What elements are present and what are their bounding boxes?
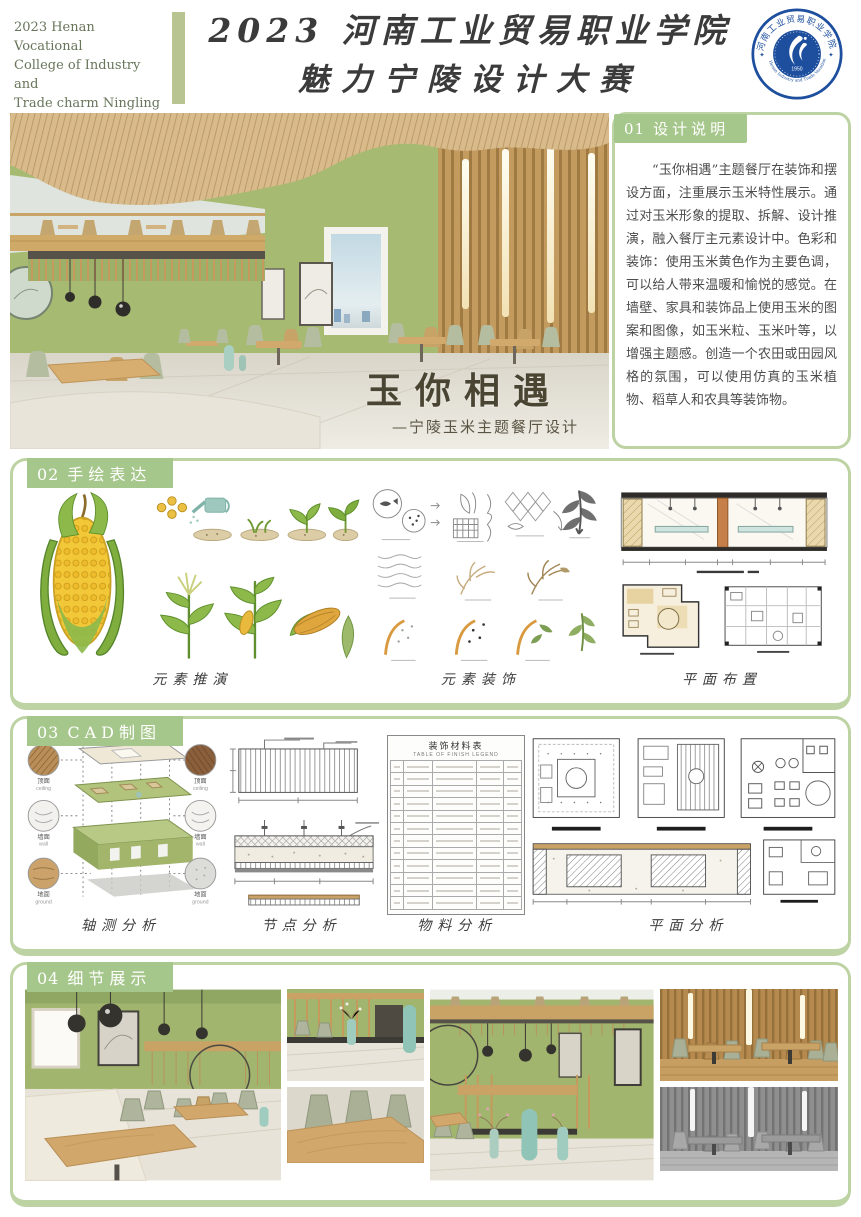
caption-line: Trade charm Ningling [14, 94, 166, 113]
poster-title-line1: 2023 河南工业贸易职业学院 [195, 4, 745, 52]
logo-star-left: ✦ [759, 52, 764, 59]
label-element-decoration: 元素装饰 [358, 669, 604, 689]
material-label-en: ground [35, 899, 52, 905]
detail-photo-6-grayscale [660, 1087, 838, 1171]
material-label-en: ground [192, 899, 209, 905]
material-label-en: ceiling [193, 786, 208, 792]
material-table-title: 装饰材料表 [390, 739, 522, 752]
detail-photo-1 [25, 989, 281, 1181]
plan-sketches-illustration [609, 483, 840, 667]
label-material-analysis: 物料分析 [384, 915, 531, 935]
caption-line: 2023 Henan Vocational [14, 18, 166, 56]
detail-photo-2 [287, 989, 424, 1081]
hero-overlay: 玉你相遇 —宁陵玉米主题餐厅设计 [366, 362, 579, 437]
section-sketch-tab: 02手绘表达 [27, 458, 173, 488]
corn-illustration [27, 483, 143, 667]
material-label: 顶面 [37, 777, 50, 785]
poster: 2023 Henan Vocational College of Industr… [0, 0, 861, 1217]
section-cad-tab: 03CAD制图 [27, 716, 183, 746]
section-number: 01 [624, 120, 645, 138]
section-title: 细节展示 [67, 969, 151, 988]
node-details-illustration [225, 735, 383, 913]
section-title: 手绘表达 [67, 465, 151, 484]
material-label-en: ceiling [36, 786, 51, 792]
material-table-subtitle: TABLE OF FINISH LEGEND [390, 752, 522, 758]
label-element-derivation: 元素推演 [27, 669, 358, 689]
design-note-text: “玉你相遇”主题餐厅在装饰和摆设方面，注重展示玉米特性展示。通过对玉米形象的提取… [615, 156, 848, 412]
material-label: 顶面 [194, 777, 207, 785]
section-sketch: 02手绘表达 [10, 458, 851, 710]
material-label: 地面 [37, 890, 50, 899]
label-plan-analysis: 平面分析 [535, 915, 842, 935]
label-floor-layout: 平面布置 [604, 669, 840, 689]
section-cad: 03CAD制图 [10, 716, 851, 956]
section-title: CAD制图 [67, 723, 161, 742]
section-number: 04 [37, 969, 59, 988]
section-title: 设计说明 [653, 120, 729, 138]
design-note-panel: 01设计说明 “玉你相遇”主题餐厅在装饰和摆设方面，注重展示玉米特性展示。通过对… [612, 112, 851, 449]
college-logo: 河南工业贸易职业学院 Henan Industry and Trade Voca… [751, 8, 843, 100]
axonometric-illustration: 顶面 ceiling 墙面 wall 地面 ground 顶面 ceiling … [23, 735, 221, 913]
material-label-en: wall [39, 842, 48, 848]
header-divider [172, 12, 185, 104]
material-table: 装饰材料表 TABLE OF FINISH LEGEND [387, 735, 525, 915]
decor-motifs-illustration [362, 483, 607, 667]
detail-photo-5 [660, 989, 838, 1081]
material-label: 墙面 [194, 832, 207, 841]
section-details: 04细节展示 [10, 962, 851, 1207]
window [324, 227, 388, 335]
section-number: 03 [37, 723, 59, 742]
poster-title-line2: 魅力宁陵设计大赛 [195, 54, 745, 99]
detail-photo-4 [430, 989, 654, 1181]
hero-overlay-subtitle: —宁陵玉米主题餐厅设计 [392, 416, 579, 437]
caption-line: College of Industry and [14, 56, 166, 94]
design-note-tab: 01设计说明 [614, 114, 747, 143]
label-node-analysis: 节点分析 [223, 915, 380, 935]
slat-wall [438, 129, 609, 353]
section-number: 02 [37, 465, 59, 484]
material-label: 墙面 [37, 832, 50, 841]
hero-overlay-title: 玉你相遇 [366, 362, 579, 414]
poster-title: 2023 河南工业贸易职业学院 魅力宁陵设计大赛 [195, 4, 745, 99]
logo-year: 1950 [791, 67, 802, 73]
material-label: 地面 [194, 890, 207, 899]
logo-star-right: ✦ [828, 52, 833, 59]
label-axon-analysis: 轴测分析 [23, 915, 219, 935]
material-label-en: wall [196, 842, 205, 848]
corn-growth-stages-illustration [145, 483, 360, 667]
section-details-tab: 04细节展示 [27, 962, 173, 992]
floorplan-cad-illustration [529, 735, 839, 913]
detail-photo-3 [287, 1087, 424, 1163]
hero-render: 玉你相遇 —宁陵玉米主题餐厅设计 [10, 113, 609, 449]
